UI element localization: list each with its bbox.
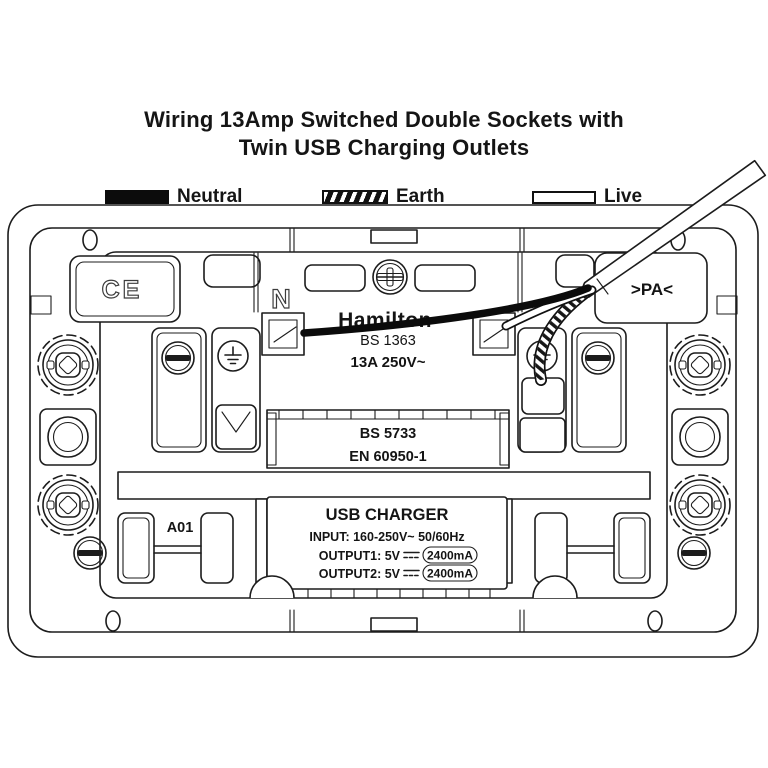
usb-output1-label: OUTPUT1: 5V — [319, 549, 401, 563]
right-terminal-strip — [518, 328, 626, 452]
module-tab — [204, 255, 260, 287]
usb-charger-module: USB CHARGER INPUT: 160-250V~ 50/60Hz OUT… — [256, 497, 512, 598]
usb-output2-label: OUTPUT2: 5V — [319, 567, 401, 581]
module-tab — [305, 265, 365, 291]
usb-output1-current: 2400mA — [427, 549, 473, 563]
usb-charger-title: USB CHARGER — [326, 506, 449, 524]
module-tab — [415, 265, 475, 291]
rating: 13A 250V~ — [351, 354, 426, 371]
module-code: A01 — [167, 520, 194, 536]
clamp-block — [520, 418, 565, 452]
standards-box: BS 5733 EN 60950-1 — [267, 410, 509, 468]
usb-standard: EN 60950-1 — [349, 449, 426, 465]
pa-marking: >PA< — [631, 280, 673, 299]
left-terminal-strip — [152, 328, 260, 452]
mounting-strap — [118, 472, 650, 499]
neutral-terminal-label: N — [271, 284, 291, 314]
usb-input-rating: INPUT: 160-250V~ 50/60Hz — [309, 530, 464, 544]
usb-output2-current: 2400mA — [427, 567, 473, 581]
plug-standard: BS 1363 — [360, 333, 416, 349]
socket-standard: BS 5733 — [360, 426, 416, 442]
neutral-terminal — [262, 313, 304, 355]
live-terminal — [473, 313, 515, 355]
socket-wiring-diagram: CE >PA< N Hamilton BS 1363 13A 250V~ — [0, 0, 768, 768]
ce-mark: CE — [102, 276, 143, 304]
